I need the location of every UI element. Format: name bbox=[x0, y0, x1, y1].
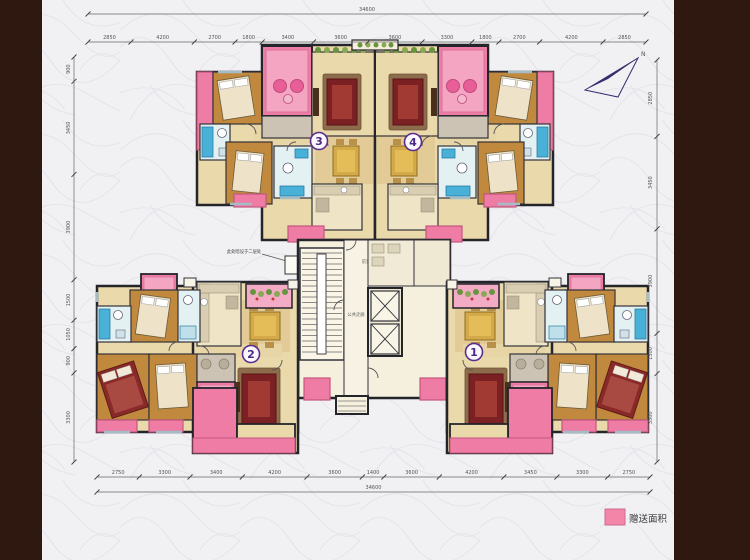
dimension-label: 2850 bbox=[648, 92, 654, 105]
unit-number: 3 bbox=[315, 135, 323, 148]
kitchen bbox=[197, 282, 241, 346]
bathroom bbox=[97, 306, 131, 342]
unit-badge-3: 3 bbox=[311, 133, 328, 150]
staircase bbox=[300, 248, 344, 360]
bedroom bbox=[149, 354, 197, 420]
dimension-label: 3900 bbox=[66, 221, 72, 234]
balcony bbox=[304, 378, 330, 400]
bedroom bbox=[213, 72, 262, 124]
dimension-label: 2700 bbox=[208, 35, 221, 41]
right-frame bbox=[674, 0, 750, 560]
dimension-label: 3450 bbox=[648, 176, 654, 189]
master-bedroom bbox=[97, 354, 149, 420]
unit-number: 4 bbox=[409, 136, 417, 149]
dimension-label: 3450 bbox=[524, 470, 537, 476]
ac-platform bbox=[288, 280, 298, 289]
dimension-label: 1400 bbox=[367, 470, 380, 476]
unit-number: 2 bbox=[247, 348, 255, 361]
legend-swatch bbox=[605, 509, 625, 525]
dimension-label: 1500 bbox=[648, 347, 654, 360]
living-room bbox=[312, 47, 375, 136]
dimension-label: 4200 bbox=[565, 35, 578, 41]
dimension-label: 3300 bbox=[441, 35, 454, 41]
balcony bbox=[262, 46, 312, 116]
dimension-label: 2700 bbox=[513, 35, 526, 41]
elevator-icons bbox=[368, 288, 402, 356]
note-text: 此处暗设于二层处 bbox=[227, 248, 262, 255]
roof-planter bbox=[352, 40, 398, 50]
dimension-label: 3300 bbox=[158, 470, 171, 476]
unit-2-plan bbox=[97, 274, 298, 453]
dimension-label: 1500 bbox=[66, 294, 72, 307]
unit-badge-4: 4 bbox=[405, 134, 422, 151]
balcony bbox=[149, 420, 183, 432]
entry-balcony bbox=[246, 284, 292, 308]
dimension-label: 1050 bbox=[66, 328, 72, 341]
dimension-label: 3900 bbox=[648, 275, 654, 288]
dimension-label: 1800 bbox=[242, 35, 255, 41]
dimension-label: 4200 bbox=[156, 35, 169, 41]
dimension-label: 34600 bbox=[359, 7, 375, 13]
balcony bbox=[420, 378, 446, 400]
unit-badge-1: 1 bbox=[466, 344, 483, 361]
corridor-label: 公共走廊 bbox=[347, 311, 365, 318]
unit-1-plan bbox=[447, 274, 648, 453]
unit-number: 1 bbox=[470, 346, 478, 359]
dimension-label: 2750 bbox=[112, 470, 125, 476]
ac-platform bbox=[184, 278, 196, 287]
left-frame bbox=[0, 0, 42, 560]
dimension-label: 3600 bbox=[328, 470, 341, 476]
dimension-label: 2750 bbox=[622, 470, 635, 476]
bathroom bbox=[178, 290, 200, 342]
bedroom bbox=[130, 290, 180, 342]
dimension-label: 3400 bbox=[210, 470, 223, 476]
dimension-label: 3600 bbox=[389, 35, 402, 41]
balcony bbox=[97, 420, 137, 432]
kitchen bbox=[312, 184, 362, 230]
dimension-label: 3300 bbox=[648, 411, 654, 424]
dimension-label: 34600 bbox=[366, 485, 382, 491]
legend-label: 赠送面积 bbox=[629, 513, 668, 525]
dimension-label: 4200 bbox=[465, 470, 478, 476]
dimension-label: 900 bbox=[66, 64, 72, 74]
dimension-label: 3600 bbox=[334, 35, 347, 41]
unit-badge-2: 2 bbox=[243, 346, 260, 363]
living-room bbox=[235, 368, 280, 430]
dimension-label: 1800 bbox=[479, 35, 492, 41]
dimension-label: 3300 bbox=[66, 411, 72, 424]
dimension-label: 4200 bbox=[268, 470, 281, 476]
dimension-label: 3450 bbox=[66, 122, 72, 135]
bathroom bbox=[274, 146, 312, 198]
meter-room bbox=[368, 240, 450, 286]
floorplan-page: N 此处暗设于二层处 bbox=[0, 0, 750, 560]
dimension-label: 3300 bbox=[576, 470, 589, 476]
dimension-label: 2850 bbox=[103, 35, 116, 41]
dimension-label: 2850 bbox=[618, 35, 631, 41]
dimension-label: 3400 bbox=[281, 35, 294, 41]
dimension-label: 3600 bbox=[405, 470, 418, 476]
floorplan-drawing: N 此处暗设于二层处 bbox=[0, 0, 750, 560]
north-label: N bbox=[641, 51, 646, 58]
dimension-label: 900 bbox=[66, 356, 72, 366]
sitting-area bbox=[262, 116, 312, 138]
core: 前室 公共走廊 bbox=[298, 240, 450, 414]
